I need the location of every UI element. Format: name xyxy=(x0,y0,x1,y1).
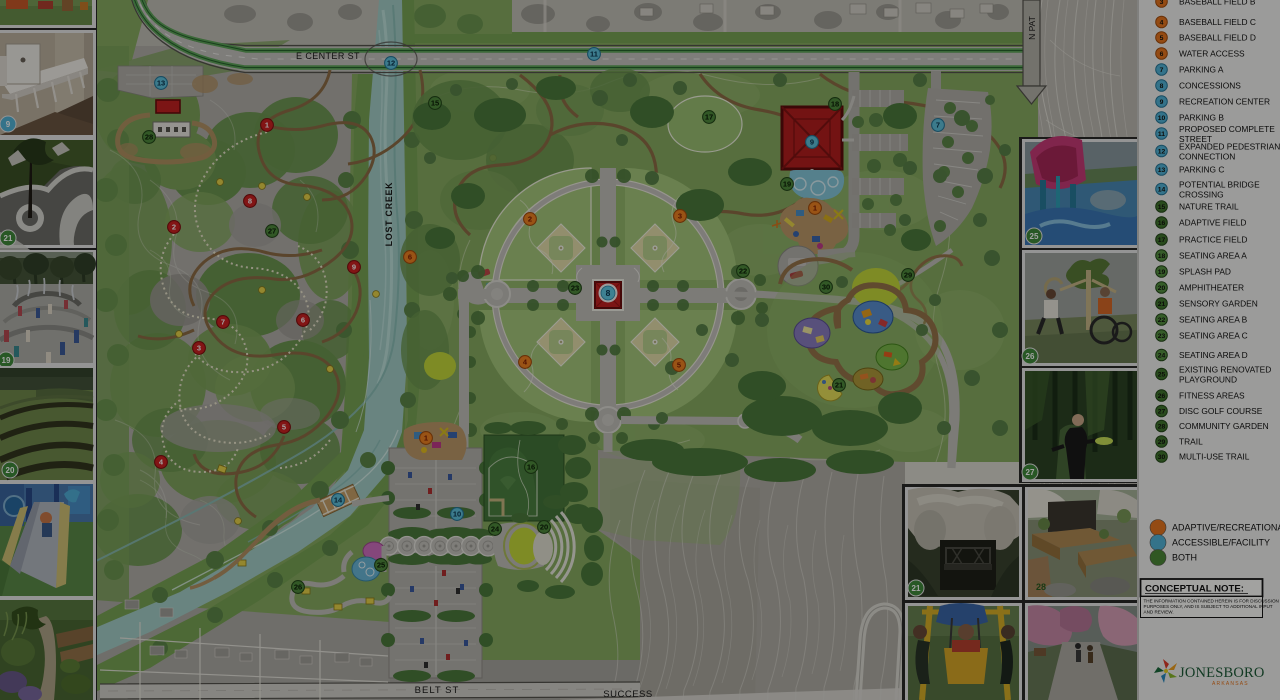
svg-text:29: 29 xyxy=(1158,439,1166,446)
svg-text:2: 2 xyxy=(172,223,176,232)
svg-text:23: 23 xyxy=(571,284,579,293)
svg-text:11: 11 xyxy=(1158,131,1165,138)
svg-text:BASEBALL FIELD C: BASEBALL FIELD C xyxy=(1179,17,1256,27)
svg-text:17: 17 xyxy=(705,113,713,122)
svg-text:14: 14 xyxy=(334,496,343,505)
svg-text:BASEBALL FIELD D: BASEBALL FIELD D xyxy=(1179,33,1256,43)
svg-text:13: 13 xyxy=(157,79,165,88)
svg-text:9: 9 xyxy=(1160,99,1164,106)
svg-text:9: 9 xyxy=(6,120,11,129)
svg-text:SEATING AREA C: SEATING AREA C xyxy=(1179,331,1248,341)
svg-text:17: 17 xyxy=(1158,237,1166,244)
svg-text:1: 1 xyxy=(813,204,817,213)
svg-text:PLAYGROUND: PLAYGROUND xyxy=(1179,375,1237,385)
svg-text:21: 21 xyxy=(912,584,921,593)
svg-text:3: 3 xyxy=(678,212,682,221)
svg-text:POTENTIAL BRIDGE: POTENTIAL BRIDGE xyxy=(1179,180,1260,190)
svg-text:CONCEPTUAL NOTE:: CONCEPTUAL NOTE: xyxy=(1145,584,1244,595)
svg-text:1: 1 xyxy=(265,121,269,130)
svg-text:28: 28 xyxy=(1036,582,1046,592)
svg-text:13: 13 xyxy=(1158,167,1166,174)
svg-text:25: 25 xyxy=(377,561,385,570)
svg-text:RECREATION CENTER: RECREATION CENTER xyxy=(1179,97,1270,107)
svg-text:SENSORY GARDEN: SENSORY GARDEN xyxy=(1179,299,1258,309)
svg-text:3: 3 xyxy=(1160,0,1164,6)
svg-text:SEATING AREA B: SEATING AREA B xyxy=(1179,315,1248,325)
svg-text:8: 8 xyxy=(248,197,252,206)
svg-text:TRAIL: TRAIL xyxy=(1179,437,1203,447)
svg-text:BOTH: BOTH xyxy=(1172,553,1197,563)
svg-text:PRACTICE FIELD: PRACTICE FIELD xyxy=(1179,235,1247,245)
svg-text:25: 25 xyxy=(1158,371,1166,378)
svg-text:DISC GOLF COURSE: DISC GOLF COURSE xyxy=(1179,406,1263,416)
svg-text:20: 20 xyxy=(6,466,15,475)
svg-text:BELT ST: BELT ST xyxy=(415,685,460,696)
svg-text:28: 28 xyxy=(1158,423,1166,430)
svg-text:CONNECTION: CONNECTION xyxy=(1179,152,1235,162)
svg-text:22: 22 xyxy=(1158,317,1166,324)
svg-text:ACCESSIBLE/FACILITY: ACCESSIBLE/FACILITY xyxy=(1172,538,1270,548)
svg-text:MULTI-USE TRAIL: MULTI-USE TRAIL xyxy=(1179,452,1250,462)
svg-text:19: 19 xyxy=(2,356,11,365)
svg-text:N PAT: N PAT xyxy=(1027,16,1037,40)
svg-text:SEATING AREA D: SEATING AREA D xyxy=(1179,350,1248,360)
svg-text:24: 24 xyxy=(491,525,500,534)
svg-text:1: 1 xyxy=(424,434,428,443)
svg-text:3: 3 xyxy=(197,344,201,353)
svg-text:18: 18 xyxy=(1158,253,1166,260)
svg-text:5: 5 xyxy=(677,361,681,370)
svg-text:15: 15 xyxy=(431,99,439,108)
svg-text:7: 7 xyxy=(936,121,940,130)
svg-text:26: 26 xyxy=(1158,393,1166,400)
svg-text:22: 22 xyxy=(739,267,747,276)
svg-text:21: 21 xyxy=(835,381,843,390)
svg-text:27: 27 xyxy=(1158,408,1166,415)
svg-text:FITNESS AREAS: FITNESS AREAS xyxy=(1179,391,1245,401)
svg-text:6: 6 xyxy=(1160,51,1164,58)
svg-text:26: 26 xyxy=(294,583,302,592)
svg-text:21: 21 xyxy=(1158,301,1166,308)
svg-text:27: 27 xyxy=(268,227,276,236)
svg-text:8: 8 xyxy=(606,288,611,298)
svg-text:29: 29 xyxy=(904,271,912,280)
svg-text:26: 26 xyxy=(1026,352,1035,361)
svg-text:ADAPTIVE FIELD: ADAPTIVE FIELD xyxy=(1179,218,1246,228)
svg-text:CROSSING: CROSSING xyxy=(1179,190,1224,200)
svg-text:18: 18 xyxy=(831,100,839,109)
svg-text:SUCCESS: SUCCESS xyxy=(603,689,652,700)
svg-text:21: 21 xyxy=(4,234,13,243)
svg-text:28: 28 xyxy=(145,133,153,142)
svg-text:16: 16 xyxy=(1158,220,1166,227)
svg-text:30: 30 xyxy=(1158,454,1166,461)
svg-text:16: 16 xyxy=(527,463,535,472)
svg-text:15: 15 xyxy=(1158,204,1166,211)
svg-text:5: 5 xyxy=(1160,35,1164,42)
svg-text:6: 6 xyxy=(301,316,305,325)
svg-text:CONCESSIONS: CONCESSIONS xyxy=(1179,81,1241,91)
svg-text:11: 11 xyxy=(590,50,598,59)
svg-text:NATURE TRAIL: NATURE TRAIL xyxy=(1179,202,1239,212)
svg-text:25: 25 xyxy=(1030,232,1039,241)
svg-text:ARKANSAS: ARKANSAS xyxy=(1212,681,1249,687)
svg-text:7: 7 xyxy=(221,318,225,327)
svg-text:PURPOSES ONLY, AND IS SUBJECT: PURPOSES ONLY, AND IS SUBJECT TO ADDITIO… xyxy=(1144,604,1273,609)
svg-text:COMMUNITY GARDEN: COMMUNITY GARDEN xyxy=(1179,421,1269,431)
svg-text:24: 24 xyxy=(1158,352,1166,359)
svg-text:PARKING B: PARKING B xyxy=(1179,113,1224,123)
svg-text:10: 10 xyxy=(1158,115,1166,122)
svg-text:27: 27 xyxy=(1026,468,1035,477)
svg-text:19: 19 xyxy=(1158,269,1166,276)
svg-text:9: 9 xyxy=(352,263,356,272)
svg-text:BASEBALL FIELD B: BASEBALL FIELD B xyxy=(1179,0,1256,7)
svg-text:WATER ACCESS: WATER ACCESS xyxy=(1179,49,1245,59)
svg-text:LOST CREEK: LOST CREEK xyxy=(384,182,394,247)
svg-text:PARKING C: PARKING C xyxy=(1179,165,1224,175)
svg-text:12: 12 xyxy=(1158,148,1166,155)
svg-text:8: 8 xyxy=(1160,83,1164,90)
svg-text:ADAPTIVE/RECREATIONAL: ADAPTIVE/RECREATIONAL xyxy=(1172,523,1280,533)
svg-text:EXPANDED PEDESTRIAN: EXPANDED PEDESTRIAN xyxy=(1179,142,1280,152)
svg-text:5: 5 xyxy=(282,423,286,432)
svg-text:14: 14 xyxy=(1158,186,1166,193)
svg-text:30: 30 xyxy=(822,283,830,292)
svg-text:PROPOSED COMPLETE: PROPOSED COMPLETE xyxy=(1179,124,1275,134)
svg-text:E CENTER ST: E CENTER ST xyxy=(296,51,360,61)
svg-text:20: 20 xyxy=(1158,285,1166,292)
svg-text:19: 19 xyxy=(783,180,791,189)
svg-text:10: 10 xyxy=(453,510,461,519)
svg-text:JONESBORO: JONESBORO xyxy=(1179,665,1265,681)
svg-text:6: 6 xyxy=(408,253,412,262)
svg-text:PARKING A: PARKING A xyxy=(1179,65,1224,75)
svg-text:23: 23 xyxy=(1158,333,1166,340)
svg-text:SEATING AREA A: SEATING AREA A xyxy=(1179,251,1247,261)
svg-text:THE INFORMATION CONTAINED HERE: THE INFORMATION CONTAINED HEREIN IS FOR … xyxy=(1144,599,1279,604)
svg-text:AMPHITHEATER: AMPHITHEATER xyxy=(1179,283,1244,293)
svg-text:12: 12 xyxy=(387,59,395,68)
svg-text:EXISTING RENOVATED: EXISTING RENOVATED xyxy=(1179,365,1271,375)
svg-text:7: 7 xyxy=(1160,67,1164,74)
svg-text:SPLASH PAD: SPLASH PAD xyxy=(1179,267,1231,277)
svg-text:AND REVIEW.: AND REVIEW. xyxy=(1144,610,1174,615)
svg-text:4: 4 xyxy=(1160,19,1164,26)
svg-text:9: 9 xyxy=(810,138,814,147)
svg-text:2: 2 xyxy=(528,215,532,224)
svg-text:20: 20 xyxy=(540,523,548,532)
